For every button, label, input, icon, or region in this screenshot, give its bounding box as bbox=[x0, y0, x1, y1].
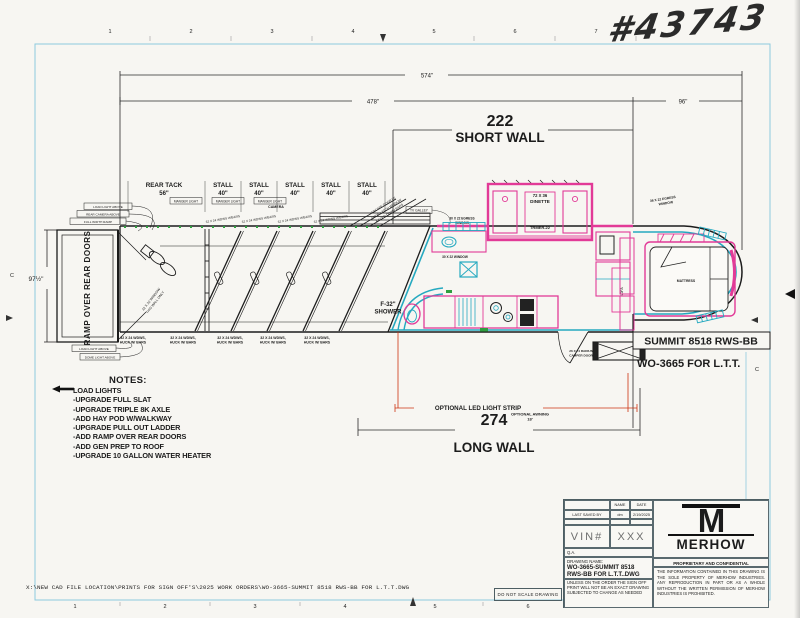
svg-text:DOME LIGHT ABOVE: DOME LIGHT ABOVE bbox=[85, 355, 116, 359]
svg-text:4: 4 bbox=[343, 604, 346, 610]
svg-text:C: C bbox=[755, 367, 759, 373]
work-order-label: WO-3665 FOR L.T.T. bbox=[637, 358, 740, 370]
svg-text:32 X 24 WDWS,: 32 X 24 WDWS, bbox=[120, 336, 146, 340]
drop-window-labels: 32 X 24 WDWS,HUCK W/ BARS 32 X 24 WDWS,H… bbox=[120, 336, 331, 345]
svg-text:LOAD LIGHT ABOVE: LOAD LIGHT ABOVE bbox=[79, 347, 109, 351]
svg-text:F-32": F-32" bbox=[380, 302, 395, 308]
note-item: -UPGRADE PULL OUT LADDER bbox=[73, 423, 211, 432]
lq-fixtures bbox=[404, 231, 486, 324]
model-box-label: SUMMIT 8518 RWS-BB bbox=[644, 336, 758, 348]
svg-text:CAMPER DOOR: CAMPER DOOR bbox=[569, 353, 593, 357]
svg-text:REAR TACK: REAR TACK bbox=[146, 182, 183, 189]
svg-text:OPTIONAL LED LIGHT STRIP: OPTIONAL LED LIGHT STRIP bbox=[435, 405, 521, 412]
notes-block: NOTES: LOAD LIGHTS -UPGRADE FULL SLAT -U… bbox=[73, 375, 211, 460]
svg-text:STALL: STALL bbox=[213, 182, 233, 189]
date-header: DATE bbox=[630, 500, 653, 510]
long-wall-label: LONG WALL bbox=[454, 440, 535, 455]
svg-text:C: C bbox=[10, 273, 14, 279]
svg-text:6: 6 bbox=[526, 604, 529, 610]
wall-titles: 222 SHORT WALL 274 LONG WALL bbox=[454, 113, 545, 455]
dinette-slide bbox=[488, 180, 592, 240]
svg-text:32 X 24 WDWS W/BARS: 32 X 24 WDWS W/BARS bbox=[277, 214, 312, 224]
svg-text:30 X 22 WINDOW: 30 X 22 WINDOW bbox=[442, 255, 468, 259]
svg-text:SHOWER: SHOWER bbox=[375, 310, 403, 316]
name-header: NAME bbox=[610, 500, 630, 510]
camper-door-label: 26 X 74 RADIUS CAMPER DOOR bbox=[569, 349, 593, 357]
svg-text:HUCK W/ BARS: HUCK W/ BARS bbox=[170, 341, 197, 345]
svg-text:40": 40" bbox=[254, 191, 264, 197]
vin-label: VIN# bbox=[564, 525, 610, 548]
note-item: -ADD HAY POD W/WALKWAY bbox=[73, 414, 211, 423]
svg-text:DINETTE: DINETTE bbox=[530, 199, 550, 204]
escape-door-note: ESCAPE DOOR W/ DROP LATCH WINDOW & FOLD … bbox=[371, 196, 404, 224]
svg-text:MANGER LIGHT: MANGER LIGHT bbox=[258, 199, 282, 203]
svg-text:STALL: STALL bbox=[321, 182, 341, 189]
short-wall-label: SHORT WALL bbox=[455, 130, 544, 145]
svg-text:18': 18' bbox=[527, 417, 532, 422]
stall-window-top-labels: 32 X 24 WDWS W/BARS 32 X 24 WDWS W/BARS … bbox=[205, 214, 348, 224]
svg-text:3: 3 bbox=[253, 604, 256, 610]
scan-edge-shadow bbox=[794, 0, 800, 618]
svg-text:32 X 24 WDWS,: 32 X 24 WDWS, bbox=[304, 336, 330, 340]
sofa-label: SOFA bbox=[620, 287, 624, 297]
file-path: X:\NEW CAD FILE LOCATION\PRINTS FOR SIGN… bbox=[26, 584, 409, 591]
svg-text:HUCK W/ BARS: HUCK W/ BARS bbox=[260, 341, 287, 345]
qa-label: Q.A. bbox=[564, 548, 653, 557]
svg-text:40": 40" bbox=[362, 191, 372, 197]
note-item: -ADD GEN PREP TO ROOF bbox=[73, 442, 211, 451]
svg-text:4: 4 bbox=[351, 29, 354, 35]
tv-galley-label: TV GALLEY bbox=[406, 207, 450, 225]
svg-text:6: 6 bbox=[513, 29, 516, 35]
do-not-scale-box: DO NOT SCALE DRAWING bbox=[494, 588, 562, 601]
note-item: -ADD RAMP OVER REAR DOORS bbox=[73, 432, 211, 441]
long-wall-value: 274 bbox=[481, 412, 508, 429]
svg-text:5: 5 bbox=[433, 604, 436, 610]
drawing-name-line1: WO-3665-SUMMIT 8518 bbox=[567, 564, 652, 571]
last-saved-name: dm bbox=[610, 510, 630, 519]
vin-value: XXX bbox=[610, 525, 653, 548]
notes-arrow bbox=[52, 386, 74, 393]
svg-text:STALL: STALL bbox=[249, 182, 269, 189]
svg-text:HUCK W/ BARS: HUCK W/ BARS bbox=[217, 341, 244, 345]
kitchen-run bbox=[424, 290, 558, 332]
svg-text:HUCK W/ BARS: HUCK W/ BARS bbox=[304, 341, 331, 345]
manger-light-labels: MANGER LIGHT MANGER LIGHT MANGER LIGHT bbox=[170, 198, 286, 205]
notes-title: NOTES: bbox=[109, 375, 211, 386]
svg-text:40": 40" bbox=[218, 191, 228, 197]
last-saved-label: LAST SAVED BY bbox=[564, 510, 610, 519]
svg-text:40": 40" bbox=[326, 191, 336, 197]
title-block: NAME DATE LAST SAVED BY dm 2/19/2025 VIN… bbox=[563, 499, 769, 608]
lq-cabinets bbox=[596, 232, 630, 312]
shower-label: F-32" SHOWER bbox=[375, 302, 403, 316]
trailer-body bbox=[120, 226, 633, 332]
dimension-labels: 574" 478" 96" 97½" bbox=[29, 74, 688, 284]
short-wall-value: 222 bbox=[487, 113, 514, 130]
rear-tack-room bbox=[141, 229, 209, 331]
svg-text:32 X 24 WDWS,: 32 X 24 WDWS, bbox=[260, 336, 286, 340]
last-saved-date: 2/19/2025 bbox=[630, 510, 653, 519]
bed bbox=[645, 234, 735, 316]
camper-door bbox=[558, 332, 645, 363]
svg-text:REAR CAMERA ABOVE: REAR CAMERA ABOVE bbox=[86, 212, 120, 216]
svg-text:32 X 24 WDWS,: 32 X 24 WDWS, bbox=[170, 336, 196, 340]
svg-text:STALL: STALL bbox=[285, 182, 305, 189]
svg-text:1: 1 bbox=[108, 29, 111, 35]
svg-text:2: 2 bbox=[189, 29, 192, 35]
svg-text:TRMER-22: TRMER-22 bbox=[530, 225, 551, 230]
svg-text:STALL: STALL bbox=[357, 182, 377, 189]
svg-text:MANGER LIGHT: MANGER LIGHT bbox=[216, 199, 240, 203]
svg-text:TV GALLEY: TV GALLEY bbox=[410, 209, 429, 213]
mattress-label: MATTRESS bbox=[677, 279, 696, 283]
drawing-name-line2: RWS-BB FOR L.T.T..DWG bbox=[567, 571, 652, 578]
merhow-logo-icon: M bbox=[654, 508, 768, 534]
stall-header-labels: REAR TACK 56" STALL40" STALL40" STALL40"… bbox=[146, 182, 377, 197]
svg-text:LOAD LIGHT ABOVE: LOAD LIGHT ABOVE bbox=[93, 205, 123, 209]
svg-text:56": 56" bbox=[159, 191, 169, 197]
tack-window-note: 32 X 32 WINDOW THIS WALL ONLY bbox=[141, 287, 166, 315]
svg-text:72 X 36: 72 X 36 bbox=[533, 193, 548, 198]
dim-rear: 478" bbox=[367, 100, 379, 106]
camera-label: CAMERA bbox=[268, 205, 284, 209]
svg-text:40": 40" bbox=[290, 191, 300, 197]
svg-text:7: 7 bbox=[594, 29, 597, 35]
svg-text:MANGER LIGHT: MANGER LIGHT bbox=[174, 199, 198, 203]
dim-overall: 574" bbox=[421, 74, 433, 80]
title-block-disclaimer: UNLESS ON THE ORDER THE SIGN OFF PRINT W… bbox=[567, 581, 650, 596]
note-item: -UPGRADE 10 GALLON WATER HEATER bbox=[73, 451, 211, 460]
svg-text:FULL WIDTH RAMP: FULL WIDTH RAMP bbox=[84, 220, 112, 224]
scanned-cad-sheet: 1 2 3 4 5 6 7 8 1 2 3 4 5 6 7 8 C C A bbox=[0, 0, 800, 618]
svg-text:3: 3 bbox=[270, 29, 273, 35]
dim-gooseneck: 96" bbox=[679, 100, 688, 106]
proprietary-title: PROPRIETARY AND CONFIDENTIAL bbox=[653, 558, 769, 567]
svg-text:32 X 24 WDWS,: 32 X 24 WDWS, bbox=[217, 336, 243, 340]
svg-text:1: 1 bbox=[73, 604, 76, 610]
rear-ramp bbox=[57, 230, 146, 342]
svg-text:5: 5 bbox=[432, 29, 435, 35]
svg-text:32 X 24 WDWS W/BARS: 32 X 24 WDWS W/BARS bbox=[205, 214, 240, 224]
note-item: LOAD LIGHTS bbox=[73, 386, 211, 395]
led-strip bbox=[395, 332, 637, 412]
note-item: -UPGRADE TRIPLE 8K AXLE bbox=[73, 405, 211, 414]
svg-text:32 X 24 WDWS W/BARS: 32 X 24 WDWS W/BARS bbox=[313, 214, 348, 224]
dinette-labels: 72 X 36 DINETTE TRMER-22 bbox=[530, 193, 551, 230]
dim-height: 97½" bbox=[29, 275, 45, 283]
svg-text:32 X 24 WDWS W/BARS: 32 X 24 WDWS W/BARS bbox=[241, 214, 276, 224]
svg-text:2: 2 bbox=[163, 604, 166, 610]
merhow-brand: MERHOW bbox=[668, 534, 754, 552]
svg-text:26 X 74 RADIUS: 26 X 74 RADIUS bbox=[569, 349, 592, 353]
svg-text:HUCK W/ BARS: HUCK W/ BARS bbox=[120, 341, 147, 345]
ramp-label: RAMP OVER REAR DOORS bbox=[83, 230, 92, 345]
proprietary-body: THE INFORMATION CONTAINED IN THIS DRAWIN… bbox=[654, 568, 768, 598]
note-item: -UPGRADE FULL SLAT bbox=[73, 395, 211, 404]
